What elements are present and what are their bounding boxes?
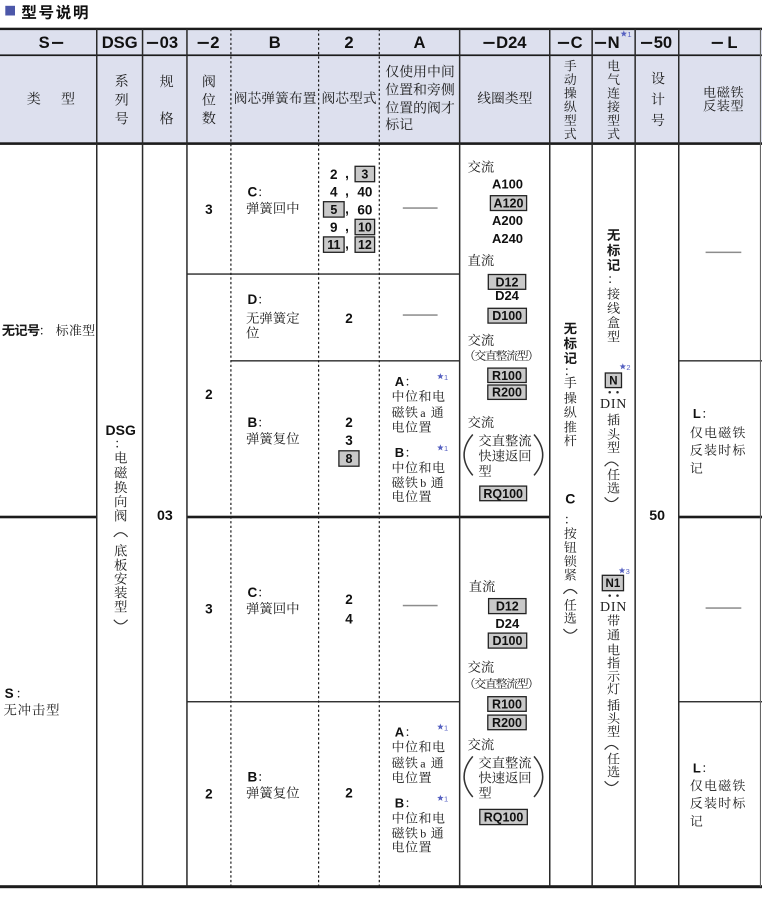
- svg-text:2: 2: [205, 387, 213, 402]
- svg-text:2: 2: [330, 167, 338, 182]
- svg-text:4: 4: [345, 611, 353, 626]
- svg-text:60: 60: [357, 202, 372, 217]
- svg-text:DIN: DIN: [600, 600, 627, 615]
- svg-text:,: ,: [345, 184, 349, 199]
- svg-text:A: A: [395, 725, 405, 740]
- svg-text:12: 12: [358, 238, 372, 252]
- svg-text:1: 1: [444, 795, 448, 804]
- svg-text:R200: R200: [492, 386, 522, 400]
- svg-text:D24: D24: [495, 288, 520, 303]
- svg-text:3: 3: [626, 567, 630, 576]
- svg-text:8: 8: [346, 452, 353, 466]
- svg-text:B: B: [269, 33, 281, 52]
- svg-text:2: 2: [345, 592, 353, 607]
- svg-text:1: 1: [444, 723, 448, 732]
- svg-text:DIN: DIN: [600, 397, 627, 412]
- svg-text:1: 1: [444, 444, 448, 453]
- svg-text:40: 40: [357, 185, 372, 200]
- svg-text:3: 3: [361, 168, 368, 182]
- svg-text:RQ100: RQ100: [484, 811, 524, 825]
- svg-text:,: ,: [345, 166, 349, 181]
- svg-text:50: 50: [649, 508, 665, 524]
- svg-text:B: B: [248, 769, 258, 784]
- svg-text:D100: D100: [493, 634, 523, 648]
- svg-text:,: ,: [345, 219, 349, 234]
- svg-text:D24: D24: [496, 33, 527, 52]
- svg-text:a: a: [420, 406, 426, 420]
- svg-text:N: N: [608, 33, 620, 52]
- svg-text:B: B: [248, 415, 258, 430]
- svg-text:3: 3: [205, 202, 213, 217]
- svg-text:5: 5: [330, 203, 337, 217]
- svg-text:S: S: [5, 686, 14, 701]
- svg-text:2: 2: [345, 415, 353, 430]
- svg-text:2: 2: [344, 33, 353, 52]
- svg-text:2: 2: [345, 311, 353, 326]
- svg-text:R100: R100: [492, 698, 522, 712]
- svg-text:3: 3: [345, 433, 353, 448]
- svg-text:4: 4: [330, 185, 338, 200]
- svg-text:A120: A120: [494, 197, 524, 211]
- svg-text:03: 03: [160, 33, 178, 52]
- svg-text:1: 1: [627, 30, 631, 39]
- svg-text:N1: N1: [606, 578, 621, 590]
- svg-text:RQ100: RQ100: [483, 487, 523, 501]
- svg-text:A200: A200: [492, 213, 523, 228]
- svg-text:R100: R100: [492, 369, 522, 383]
- svg-text:S: S: [39, 33, 50, 52]
- svg-text:D12: D12: [496, 600, 519, 614]
- svg-text:R200: R200: [492, 716, 522, 730]
- svg-text:DSG: DSG: [106, 422, 136, 438]
- svg-text:A240: A240: [492, 231, 523, 246]
- svg-text:D100: D100: [492, 309, 522, 323]
- svg-text:10: 10: [358, 221, 372, 235]
- svg-text:C: C: [571, 33, 583, 52]
- svg-text:1: 1: [444, 373, 448, 382]
- svg-text:B: B: [395, 796, 404, 811]
- svg-text:,: ,: [345, 201, 349, 216]
- svg-text:C: C: [248, 585, 258, 600]
- svg-text:C: C: [565, 491, 575, 507]
- svg-text:L: L: [727, 33, 737, 52]
- svg-text:L: L: [693, 761, 701, 776]
- svg-text:9: 9: [330, 220, 338, 235]
- svg-text:50: 50: [654, 33, 672, 52]
- svg-text:2: 2: [345, 785, 353, 800]
- svg-text:,: ,: [345, 237, 349, 252]
- svg-text:B: B: [395, 445, 404, 460]
- svg-text:L: L: [693, 406, 701, 421]
- svg-text:2: 2: [210, 33, 219, 52]
- svg-text:3: 3: [205, 601, 213, 616]
- svg-text:b: b: [420, 827, 426, 841]
- svg-text:N: N: [609, 375, 617, 387]
- svg-text:A: A: [414, 33, 426, 52]
- svg-text:11: 11: [327, 238, 340, 252]
- svg-text:b: b: [420, 476, 426, 490]
- svg-text:DSG: DSG: [102, 33, 138, 52]
- svg-text:a: a: [420, 757, 426, 771]
- svg-text:03: 03: [157, 508, 173, 524]
- svg-text:2: 2: [626, 363, 630, 372]
- svg-text:C: C: [248, 185, 258, 200]
- svg-text:A100: A100: [492, 176, 523, 191]
- svg-text:2: 2: [205, 786, 213, 801]
- svg-text:D: D: [248, 292, 258, 307]
- svg-text:D24: D24: [495, 616, 520, 631]
- svg-text:A: A: [395, 374, 405, 389]
